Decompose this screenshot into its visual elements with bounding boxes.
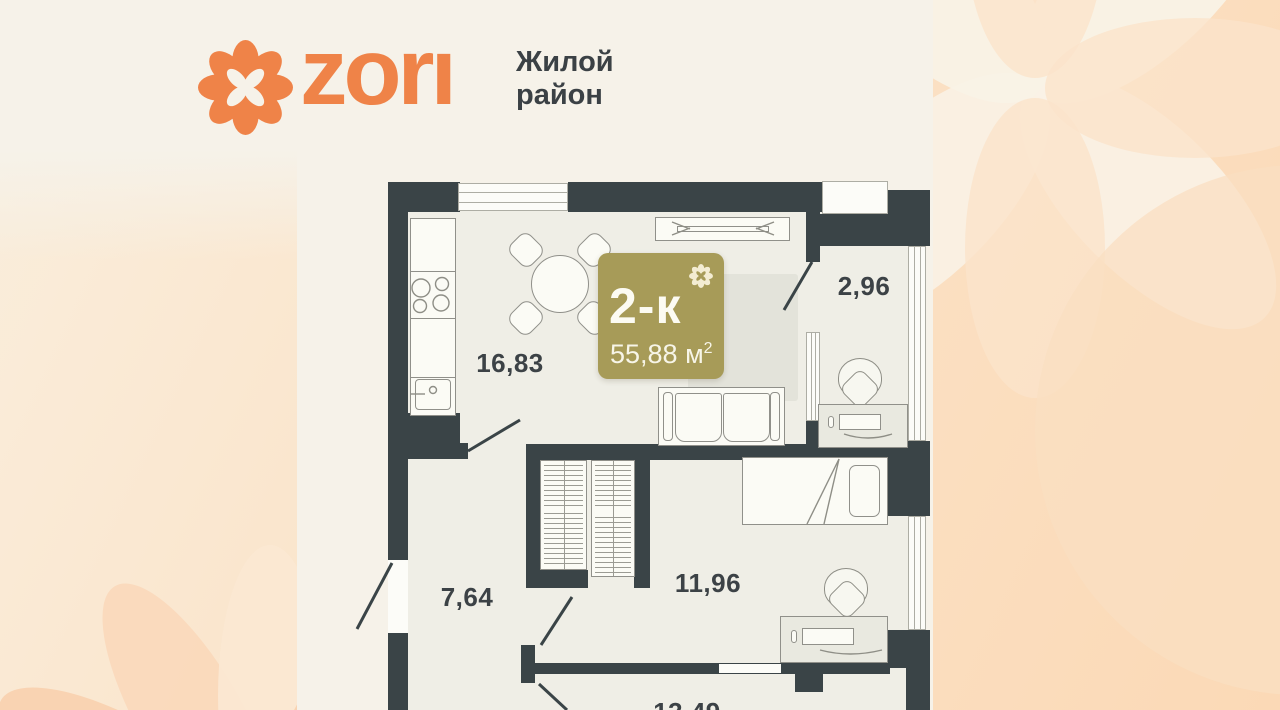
badge-rooms-count: 2-к [609,277,681,335]
brand-tagline-line1: Жилой [516,46,614,79]
wall-bottom-stub [795,674,823,692]
badge-flower-icon [689,264,713,288]
badge-area-value: 55,88 м2 [610,339,713,370]
desk-monitor [802,628,854,645]
bedroom-desk [780,616,888,663]
window-balcony-top [822,181,888,214]
desk-monitor [839,414,881,430]
wall-top-middle [568,182,822,212]
wall-bottom [534,663,890,674]
wall-right-mid-block [886,441,930,516]
wall-kitchen-block [398,413,460,445]
brand-tagline-line2: район [516,79,614,112]
brand-tagline: Жилой район [516,46,614,112]
room-label-kitchen-living: 16,83 [450,348,570,379]
wall-right-bottom [906,666,930,710]
balcony-desk [818,404,908,448]
room-label-hallway: 7,64 [407,582,527,613]
room-label-bedroom: 11,96 [648,568,768,599]
bottom-wall-opening [719,664,781,673]
sofa-armrest [770,392,780,441]
badge-area-sup: 2 [704,340,713,357]
sofa-cushion [675,393,722,442]
wall-top-left [388,182,460,212]
bed [742,457,888,525]
room-label-balcony: 2,96 [814,271,914,302]
desk-lamp [828,416,834,428]
dining-table [531,255,589,313]
wardrobe-rail [677,226,769,232]
hall-closet [540,460,587,570]
listing-floor-plan-image[interactable]: zorı Жилой район [0,0,1280,710]
wall-top-right-block [888,190,930,246]
entrance-door-opening [388,560,408,633]
window-bedroom [908,516,926,630]
apartment-badge: 2-к 55,88 м2 [598,253,724,379]
desk-lamp [791,630,797,643]
bed-pillow [849,465,880,517]
kitchen-sink [415,379,451,410]
wall-left-lower [388,633,408,710]
wall-closet-left [526,452,540,588]
hall-closet [591,460,635,577]
wall-right-low-block [886,630,930,668]
living-wardrobe [655,217,790,241]
wall-mid-left-stub [388,443,468,459]
brand-wordmark: zorı [300,22,453,122]
sofa-cushion [723,393,770,442]
sofa [658,387,785,446]
logo-flower-icon [198,40,293,135]
badge-area-text: 55,88 м [610,339,704,369]
wall-balcony-top [820,214,890,246]
room-label-bottom-room: 13,49 [627,697,747,710]
wall-left-upper [388,182,408,560]
wall-closet-bottom [532,570,588,588]
sofa-armrest [663,392,673,441]
wall-balcony-divider-top [806,212,820,262]
wall-doorpost [521,645,535,683]
panel-fade [0,150,300,260]
window-kitchen [458,183,568,211]
